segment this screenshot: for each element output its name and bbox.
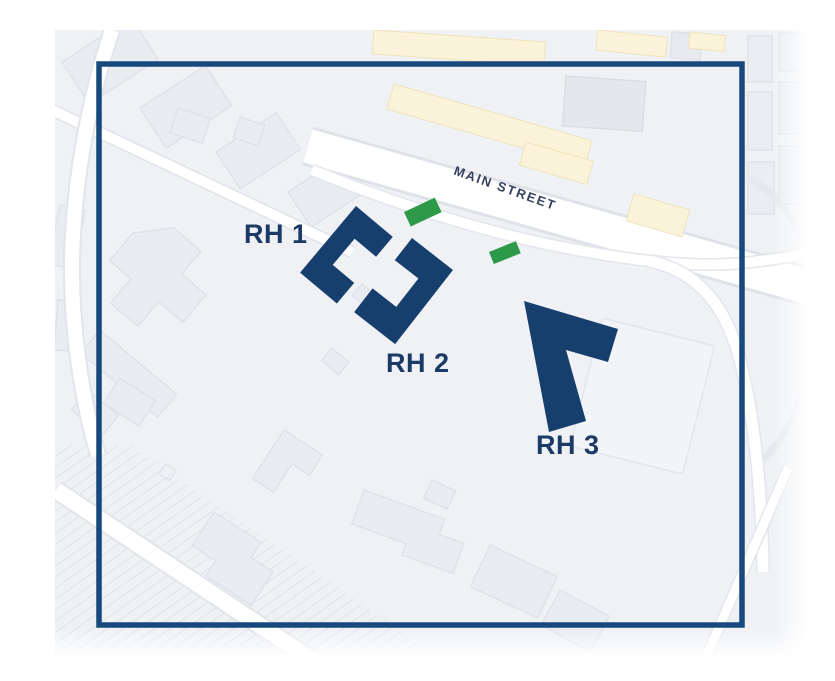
map-graphic: [0, 0, 835, 681]
map-building-footprint: [748, 36, 772, 82]
yellow-block: [688, 32, 725, 52]
rh1-label: RH 1: [244, 219, 308, 250]
right-fade: [772, 30, 807, 658]
rh3-label: RH 3: [536, 430, 600, 461]
map-building-footprint: [748, 92, 772, 150]
bottom-fade: [55, 628, 807, 658]
gray-block: [563, 76, 646, 131]
site-plan-figure: MAIN STREET RH 1 RH 2 RH 3: [0, 0, 835, 681]
rh2-label: RH 2: [386, 348, 450, 379]
